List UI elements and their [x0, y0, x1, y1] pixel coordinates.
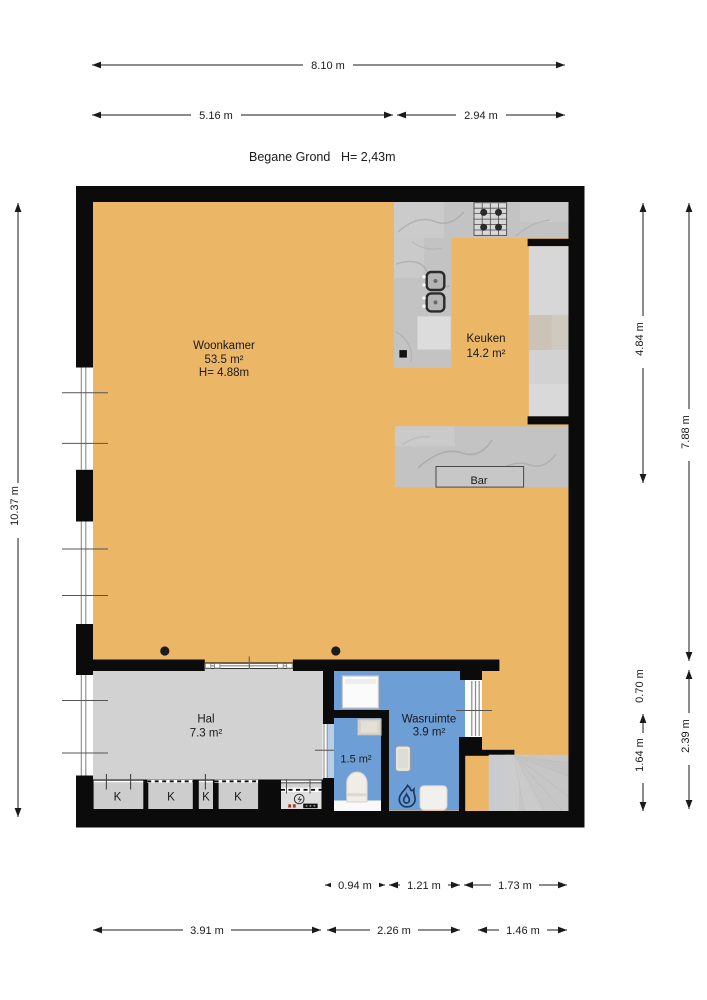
svg-text:10.37 m: 10.37 m [9, 486, 21, 526]
svg-text:7.3 m²: 7.3 m² [190, 728, 223, 740]
svg-text:K: K [167, 792, 175, 804]
svg-text:4.84 m: 4.84 m [634, 322, 646, 356]
svg-text:3.91 m: 3.91 m [190, 925, 224, 937]
svg-text:K: K [202, 792, 210, 804]
svg-text:Woonkamer: Woonkamer [193, 340, 255, 352]
svg-text:14.2 m²: 14.2 m² [467, 348, 506, 360]
svg-text:K: K [234, 792, 242, 804]
svg-text:Begane Grond: Begane Grond [249, 150, 330, 164]
svg-text:H= 4.88m: H= 4.88m [199, 367, 249, 379]
svg-text:Bar: Bar [470, 475, 487, 487]
svg-text:1.46 m: 1.46 m [506, 925, 540, 937]
svg-text:3.9 m²: 3.9 m² [413, 727, 446, 739]
svg-text:2.39 m: 2.39 m [680, 719, 692, 753]
svg-text:Wasruimte: Wasruimte [402, 714, 457, 726]
svg-text:2.94 m: 2.94 m [464, 110, 498, 122]
svg-text:5.16 m: 5.16 m [199, 110, 233, 122]
svg-text:8.10 m: 8.10 m [311, 60, 345, 72]
svg-text:1.73 m: 1.73 m [498, 880, 532, 892]
svg-text:53.5 m²: 53.5 m² [205, 354, 244, 366]
svg-text:K: K [114, 792, 122, 804]
svg-text:H= 2,43m: H= 2,43m [341, 150, 396, 164]
svg-text:1.64 m: 1.64 m [634, 738, 646, 772]
svg-text:0.94 m: 0.94 m [338, 880, 372, 892]
svg-text:Hal: Hal [197, 714, 214, 726]
svg-text:2.26 m: 2.26 m [377, 925, 411, 937]
svg-text:1.5 m²: 1.5 m² [340, 754, 372, 766]
svg-text:1.21 m: 1.21 m [407, 880, 441, 892]
svg-text:Keuken: Keuken [466, 333, 505, 345]
svg-text:0.70 m: 0.70 m [634, 669, 646, 703]
svg-text:7.88 m: 7.88 m [680, 415, 692, 449]
